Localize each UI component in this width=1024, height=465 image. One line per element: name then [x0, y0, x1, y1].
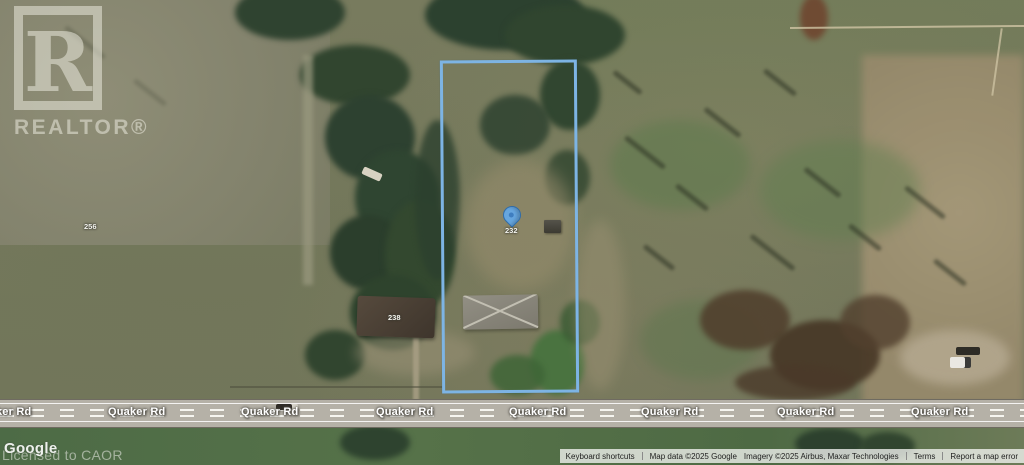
road-edge-line [0, 421, 1024, 422]
road-label: Quaker Rd [911, 406, 968, 418]
track-streak [642, 244, 675, 271]
dirt-clearing [575, 220, 625, 390]
tree-canopy [340, 425, 410, 460]
brown-soil [840, 295, 910, 350]
attribution-bar: Keyboard shortcuts Map data ©2025 Google… [560, 449, 1024, 463]
realtor-watermark: R REALTOR® [14, 6, 149, 140]
road-edge-line [0, 403, 1024, 404]
realtor-logo-r: R [24, 26, 92, 101]
field-track [303, 55, 313, 285]
map-data-credit: Map data ©2025 Google [650, 452, 737, 461]
keyboard-shortcuts-button[interactable]: Keyboard shortcuts [566, 452, 635, 461]
imagery-credit: Imagery ©2025 Airbus, Maxar Technologies [744, 452, 899, 461]
grass-patch [760, 140, 920, 240]
parcel-number-238: 238 [388, 313, 401, 322]
fence-line [230, 386, 442, 388]
road-label: Quaker Rd [509, 406, 566, 418]
brown-soil [735, 365, 855, 400]
track-streak [749, 234, 795, 272]
map-pin-dot [508, 211, 515, 218]
road-label: Quaker Rd [777, 406, 834, 418]
terms-link[interactable]: Terms [914, 452, 936, 461]
report-map-error-link[interactable]: Report a map error [950, 452, 1018, 461]
road-label: Quaker Rd [0, 406, 31, 418]
parcel-number-256: 256 [84, 222, 97, 231]
road-label: Quaker Rd [641, 406, 698, 418]
tree-canopy [300, 45, 410, 105]
truck-white [950, 357, 971, 368]
attribution-divider [906, 452, 907, 460]
realtor-logo-box: R [14, 6, 102, 110]
driveway [413, 338, 419, 400]
road-label: Quaker Rd [241, 406, 298, 418]
road-label: Quaker Rd [108, 406, 165, 418]
attribution-divider [942, 452, 943, 460]
truck-dark [956, 347, 980, 355]
satellite-map-canvas[interactable]: Quaker Rd Quaker Rd Quaker Rd Quaker Rd … [0, 0, 1024, 465]
grass-patch [610, 120, 750, 210]
google-logo[interactable]: Google [4, 440, 57, 457]
tree-canopy [505, 5, 625, 65]
road-label: Quaker Rd [376, 406, 433, 418]
realtor-logo-word: REALTOR® [14, 116, 149, 140]
parcel-number-232: 232 [505, 226, 518, 235]
attribution-divider [642, 452, 643, 460]
